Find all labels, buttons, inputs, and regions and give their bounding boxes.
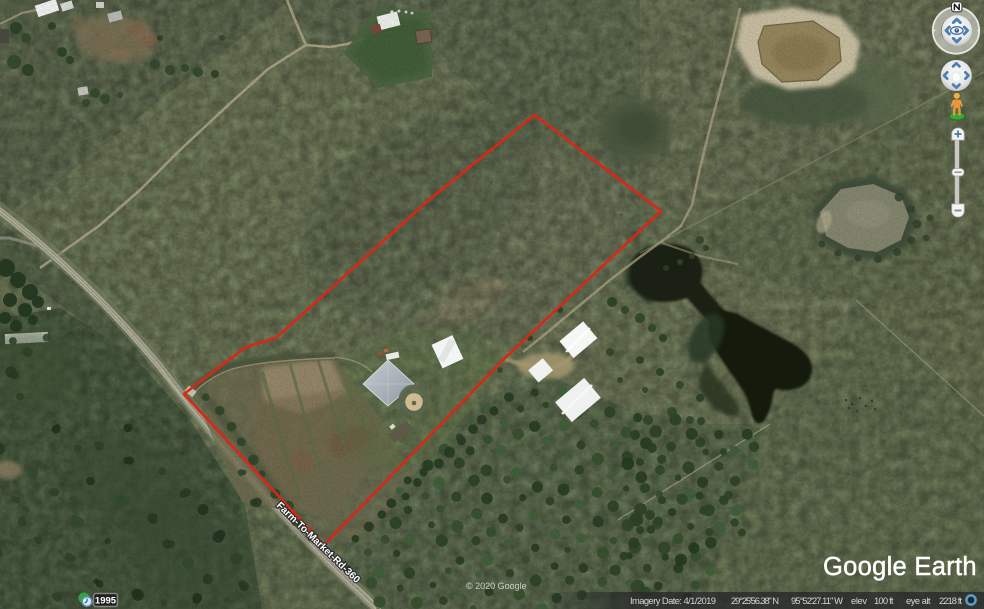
svg-text:1995: 1995 bbox=[95, 596, 117, 607]
svg-text:29°25'56.38" N: 29°25'56.38" N bbox=[731, 595, 779, 606]
svg-text:© 2020 Google: © 2020 Google bbox=[466, 581, 527, 591]
svg-text:eye alt: eye alt bbox=[906, 595, 931, 606]
svg-text:2218 ft: 2218 ft bbox=[939, 595, 962, 606]
svg-text:elev: elev bbox=[851, 595, 867, 606]
svg-text:Imagery Date: 4/1/2019: Imagery Date: 4/1/2019 bbox=[630, 595, 716, 606]
svg-text:100 ft: 100 ft bbox=[874, 595, 894, 606]
svg-text:95°52'27.11" W: 95°52'27.11" W bbox=[791, 595, 843, 606]
svg-text:Google Earth: Google Earth bbox=[823, 553, 977, 581]
